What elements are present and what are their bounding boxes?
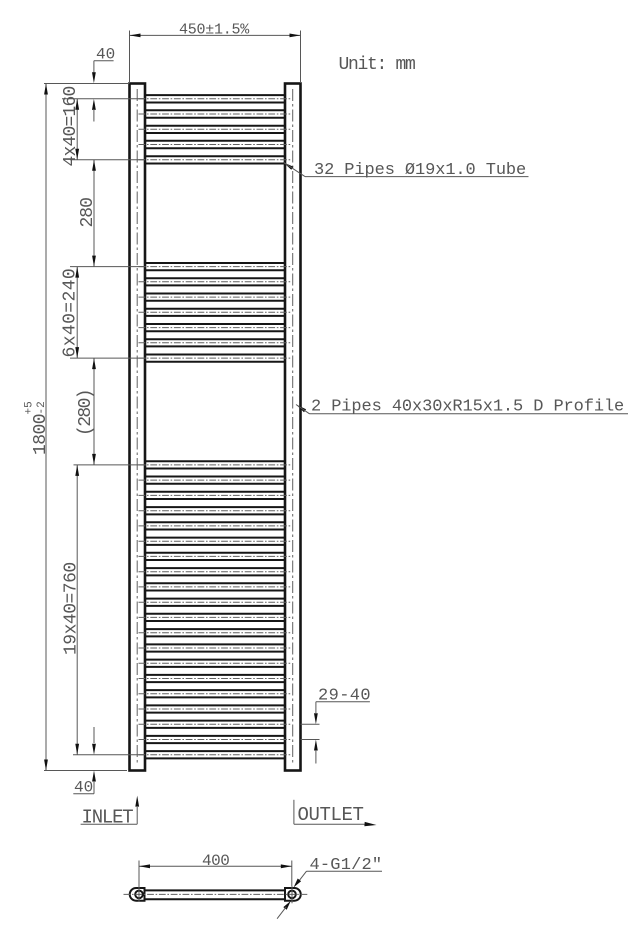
svg-text:400: 400 — [202, 852, 229, 870]
svg-text:OUTLET: OUTLET — [298, 804, 364, 826]
svg-text:2 Pipes 40x30xR15x1.5 D Profil: 2 Pipes 40x30xR15x1.5 D Profile — [311, 398, 624, 417]
svg-text:29-40: 29-40 — [318, 687, 371, 706]
svg-text:40: 40 — [74, 779, 93, 797]
svg-text:INLET: INLET — [82, 807, 134, 829]
svg-text:6x40=240: 6x40=240 — [61, 268, 81, 358]
svg-text:+5: +5 — [24, 401, 36, 414]
svg-text:(280): (280) — [76, 390, 96, 436]
svg-text:450±1.5%: 450±1.5% — [179, 22, 250, 39]
svg-text:280: 280 — [78, 198, 98, 228]
svg-text:4-G1/2": 4-G1/2" — [310, 856, 383, 875]
svg-text:32 Pipes Ø19x1.0 Tube: 32 Pipes Ø19x1.0 Tube — [314, 161, 526, 180]
svg-text:Unit: mm: Unit: mm — [339, 55, 416, 75]
svg-text:40: 40 — [96, 46, 115, 64]
svg-text:1800: 1800 — [31, 414, 51, 455]
svg-text:19x40=760: 19x40=760 — [62, 562, 82, 655]
svg-text:-2: -2 — [36, 401, 48, 414]
svg-text:4x40=160: 4x40=160 — [61, 86, 81, 166]
